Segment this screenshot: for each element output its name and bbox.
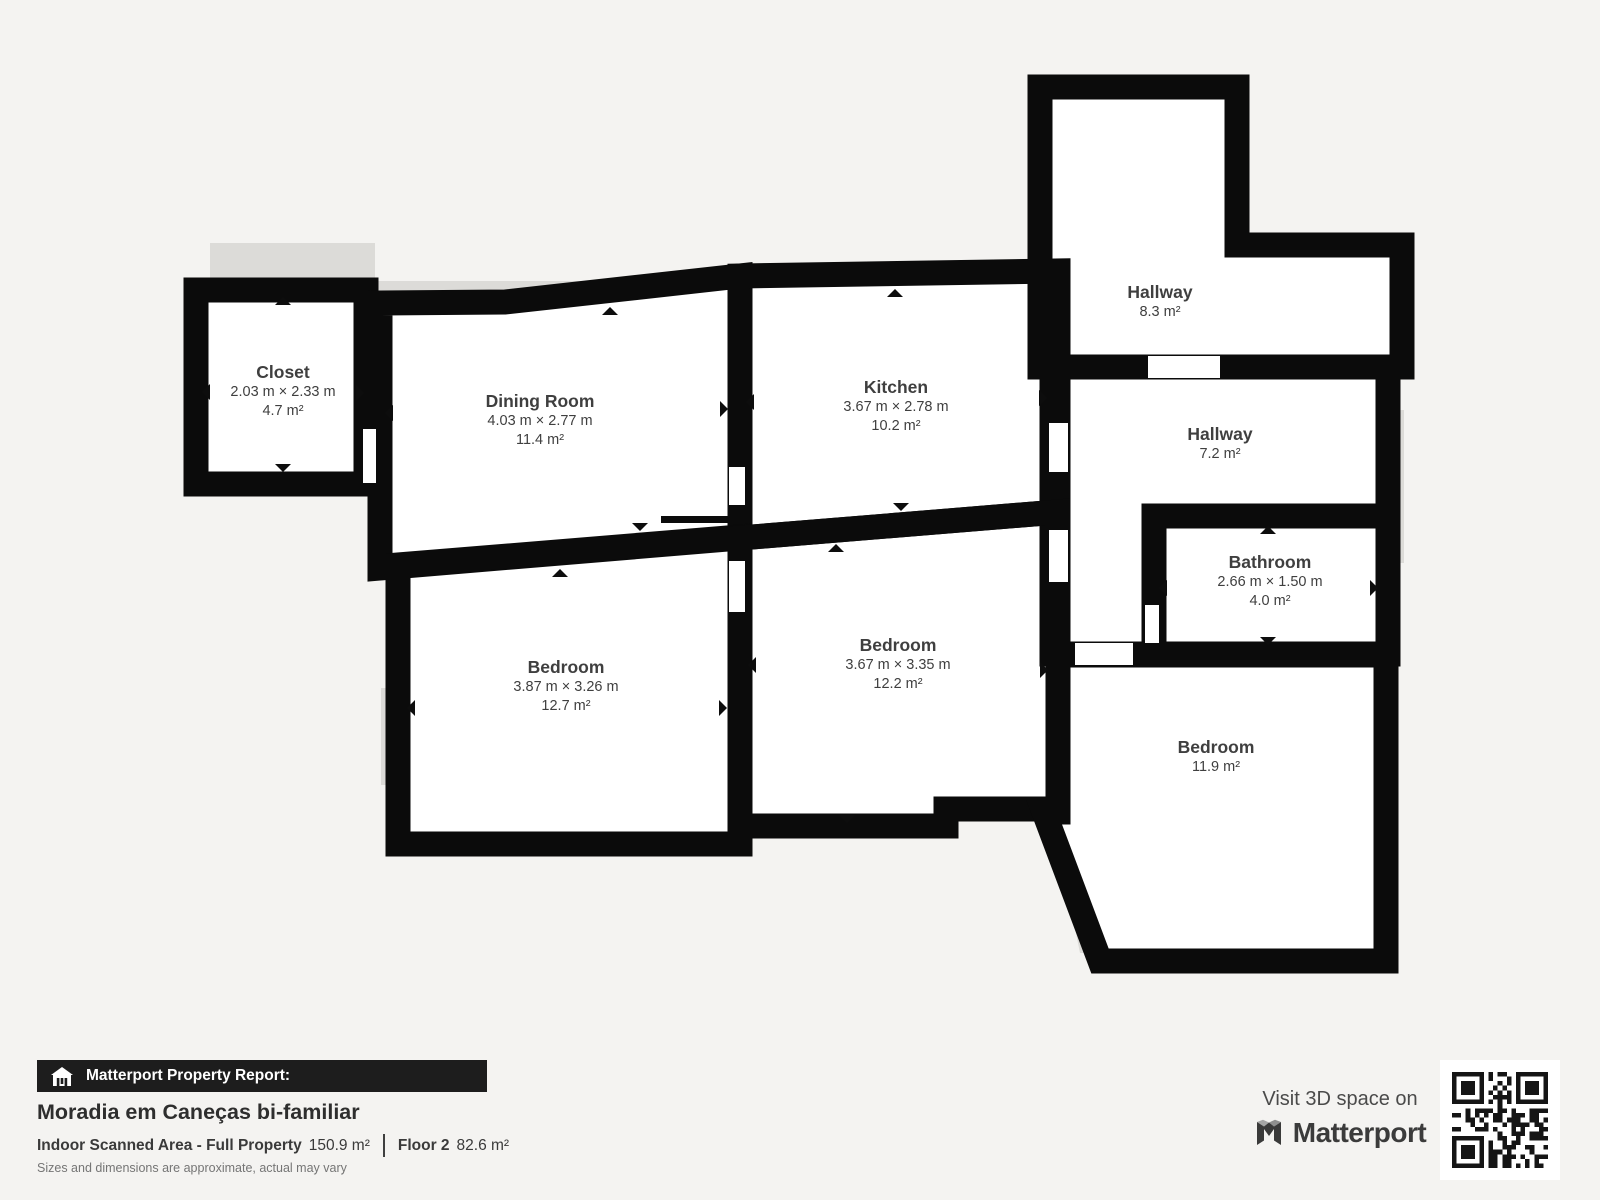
room-shape-closet: [196, 290, 366, 484]
room-shape-dining-room: [380, 276, 740, 568]
room-shape-hallway-top: [1040, 87, 1402, 367]
disclaimer-text: Sizes and dimensions are approximate, ac…: [37, 1161, 347, 1175]
scanned-area-label: Indoor Scanned Area - Full Property: [37, 1137, 302, 1155]
half-wall-stub: [661, 516, 731, 523]
report-label: Matterport Property Report:: [86, 1067, 290, 1085]
floor-value: 82.6 m²: [457, 1137, 510, 1155]
visit-3d-label: Visit 3D space on: [1262, 1088, 1417, 1111]
qr-code-pattern: [1452, 1072, 1548, 1168]
floor-plan: [0, 0, 1600, 1200]
property-report-page: Closet 2.03 m × 2.33 m 4.7 m² Dining Roo…: [0, 0, 1600, 1200]
house-icon: [50, 1066, 74, 1087]
matterport-m-icon: [1254, 1118, 1284, 1148]
property-title: Moradia em Caneças bi-familiar: [37, 1100, 360, 1125]
area-summary: Indoor Scanned Area - Full Property 150.…: [37, 1134, 509, 1157]
matterport-logo: Matterport: [1254, 1117, 1426, 1149]
floor-label: Floor 2: [398, 1137, 450, 1155]
matterport-wordmark: Matterport: [1293, 1117, 1426, 1149]
scanned-area-value: 150.9 m²: [309, 1137, 370, 1155]
room-shape-bathroom: [1154, 516, 1388, 654]
room-shape-bedroom-left: [398, 537, 740, 844]
divider: [383, 1134, 385, 1157]
report-header-bar: Matterport Property Report:: [37, 1060, 487, 1092]
qr-code: [1440, 1060, 1560, 1180]
room-shape-bedroom-mid: [740, 512, 1058, 826]
visit-3d-cta: Visit 3D space on Matterport: [1232, 1088, 1448, 1149]
room-shape-kitchen: [740, 271, 1058, 538]
